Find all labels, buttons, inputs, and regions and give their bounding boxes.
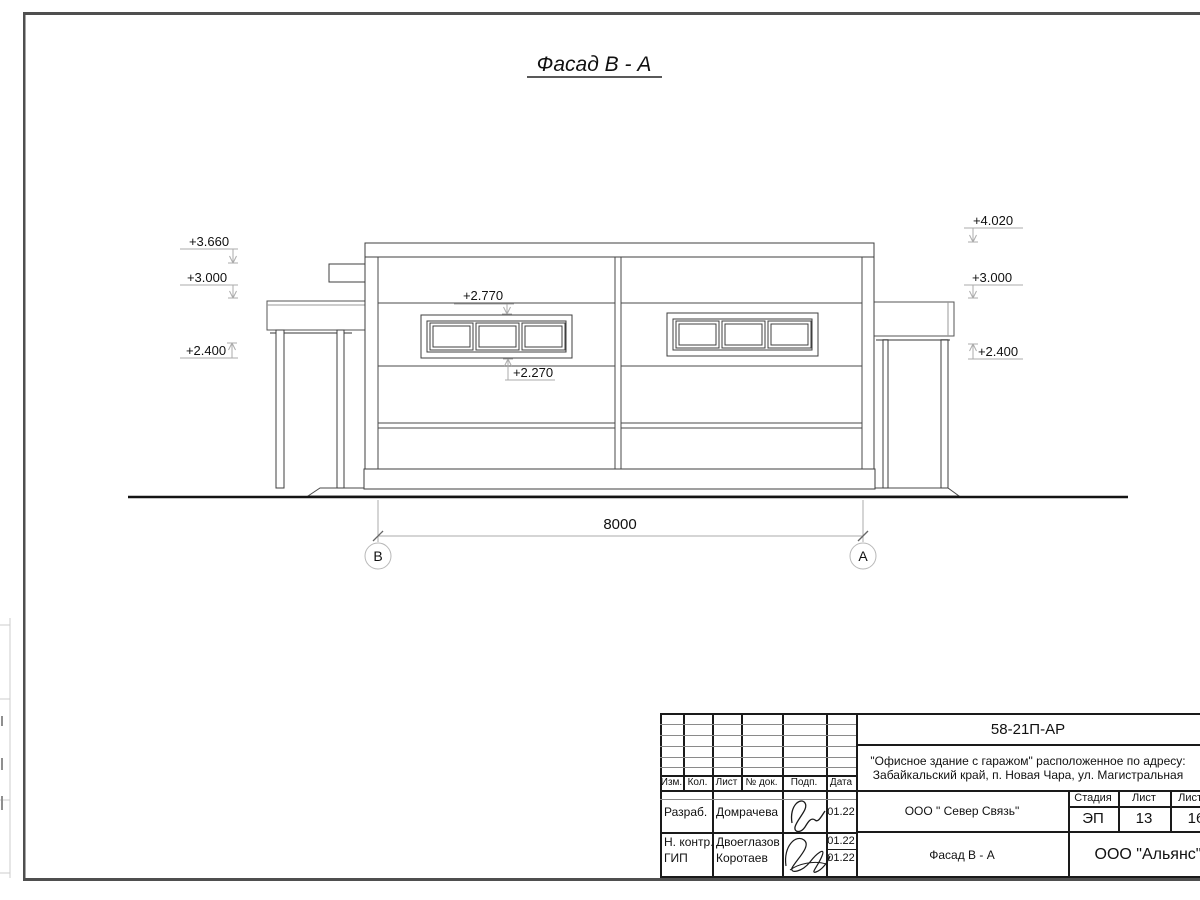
axis-letter-right: А: [858, 548, 868, 564]
stage-label: Стадия: [1068, 790, 1118, 806]
right-canopy-post: [941, 340, 948, 488]
plinth-band: [364, 469, 875, 489]
col-header-list: Лист: [712, 775, 741, 790]
dimension-8000: 8000 В А: [365, 500, 876, 569]
name-cell: Двоеглазов: [716, 834, 784, 850]
project-address-line2: Забайкальский край, п. Новая Чара, ул. М…: [873, 768, 1183, 782]
doc-number: 58-21П-АР: [856, 715, 1200, 744]
elevation-mark: [964, 285, 1023, 298]
sheets-label: Листов: [1170, 790, 1200, 806]
name-cell: Коротаев: [716, 850, 784, 866]
role-cell: Разраб.: [664, 801, 712, 823]
date-cell: 01.22: [826, 801, 856, 823]
elevation-label: +3.000: [972, 270, 1012, 285]
wall: [365, 257, 874, 469]
col-header-doc: № док.: [741, 775, 782, 790]
name-cell: Домрачева: [716, 801, 782, 823]
elevation-label: +2.400: [978, 344, 1018, 359]
roof-vent: [329, 264, 365, 282]
left-canopy-post: [337, 330, 344, 488]
client-company: ООО " Север Связь": [856, 790, 1068, 831]
drawing-sheet: Фасад В - А: [0, 0, 1200, 900]
right-canopy: [874, 302, 954, 488]
parapet-band: [365, 243, 874, 257]
elevation-mark: [180, 249, 238, 263]
col-header-data: Дата: [826, 775, 856, 790]
sheet-label: Лист: [1118, 790, 1170, 806]
role-cell: ГИП: [664, 850, 714, 866]
left-margin-marks: [0, 618, 10, 878]
elevation-label: +2.770: [463, 288, 503, 303]
building-elevation: [267, 243, 959, 496]
elevation-label: +3.000: [187, 270, 227, 285]
view-title: Фасад В - А: [527, 53, 662, 77]
right-canopy-post: [883, 340, 888, 488]
dimension-value: 8000: [603, 516, 636, 533]
view-name-cell: Фасад В - А: [856, 831, 1068, 878]
elevation-label: +2.270: [513, 365, 553, 380]
view-title-text: Фасад В - А: [537, 53, 652, 76]
project-address: "Офисное здание с гаражом" расположенное…: [856, 746, 1200, 790]
project-address-line1: "Офисное здание с гаражом" расположенное…: [870, 754, 1185, 768]
sheet-number: 13: [1118, 806, 1170, 831]
elevation-label: +4.020: [973, 213, 1013, 228]
left-canopy: [267, 301, 365, 488]
window-right: [667, 313, 818, 356]
window-left: [421, 315, 572, 358]
role-cell: Н. контр.: [664, 834, 714, 850]
title-block: Изм. Кол. Лист № док. Подп. Дата Разраб.…: [660, 713, 1200, 878]
axis-letter-left: В: [373, 548, 382, 564]
elevation-label: +3.660: [189, 234, 229, 249]
signature-scribble: [780, 826, 832, 876]
elevation-mark: [180, 285, 238, 298]
elevation-label: +2.400: [186, 343, 226, 358]
left-canopy-post: [276, 330, 284, 488]
col-header-kol: Кол.: [683, 775, 712, 790]
col-header-podp: Подп.: [782, 775, 826, 790]
elevation-mark: [964, 228, 1023, 242]
col-header-izm: Изм.: [660, 775, 683, 790]
org-name: ООО "Альянс": [1068, 831, 1200, 878]
stage-value: ЭП: [1068, 806, 1118, 831]
sheets-total: 16: [1170, 806, 1200, 831]
